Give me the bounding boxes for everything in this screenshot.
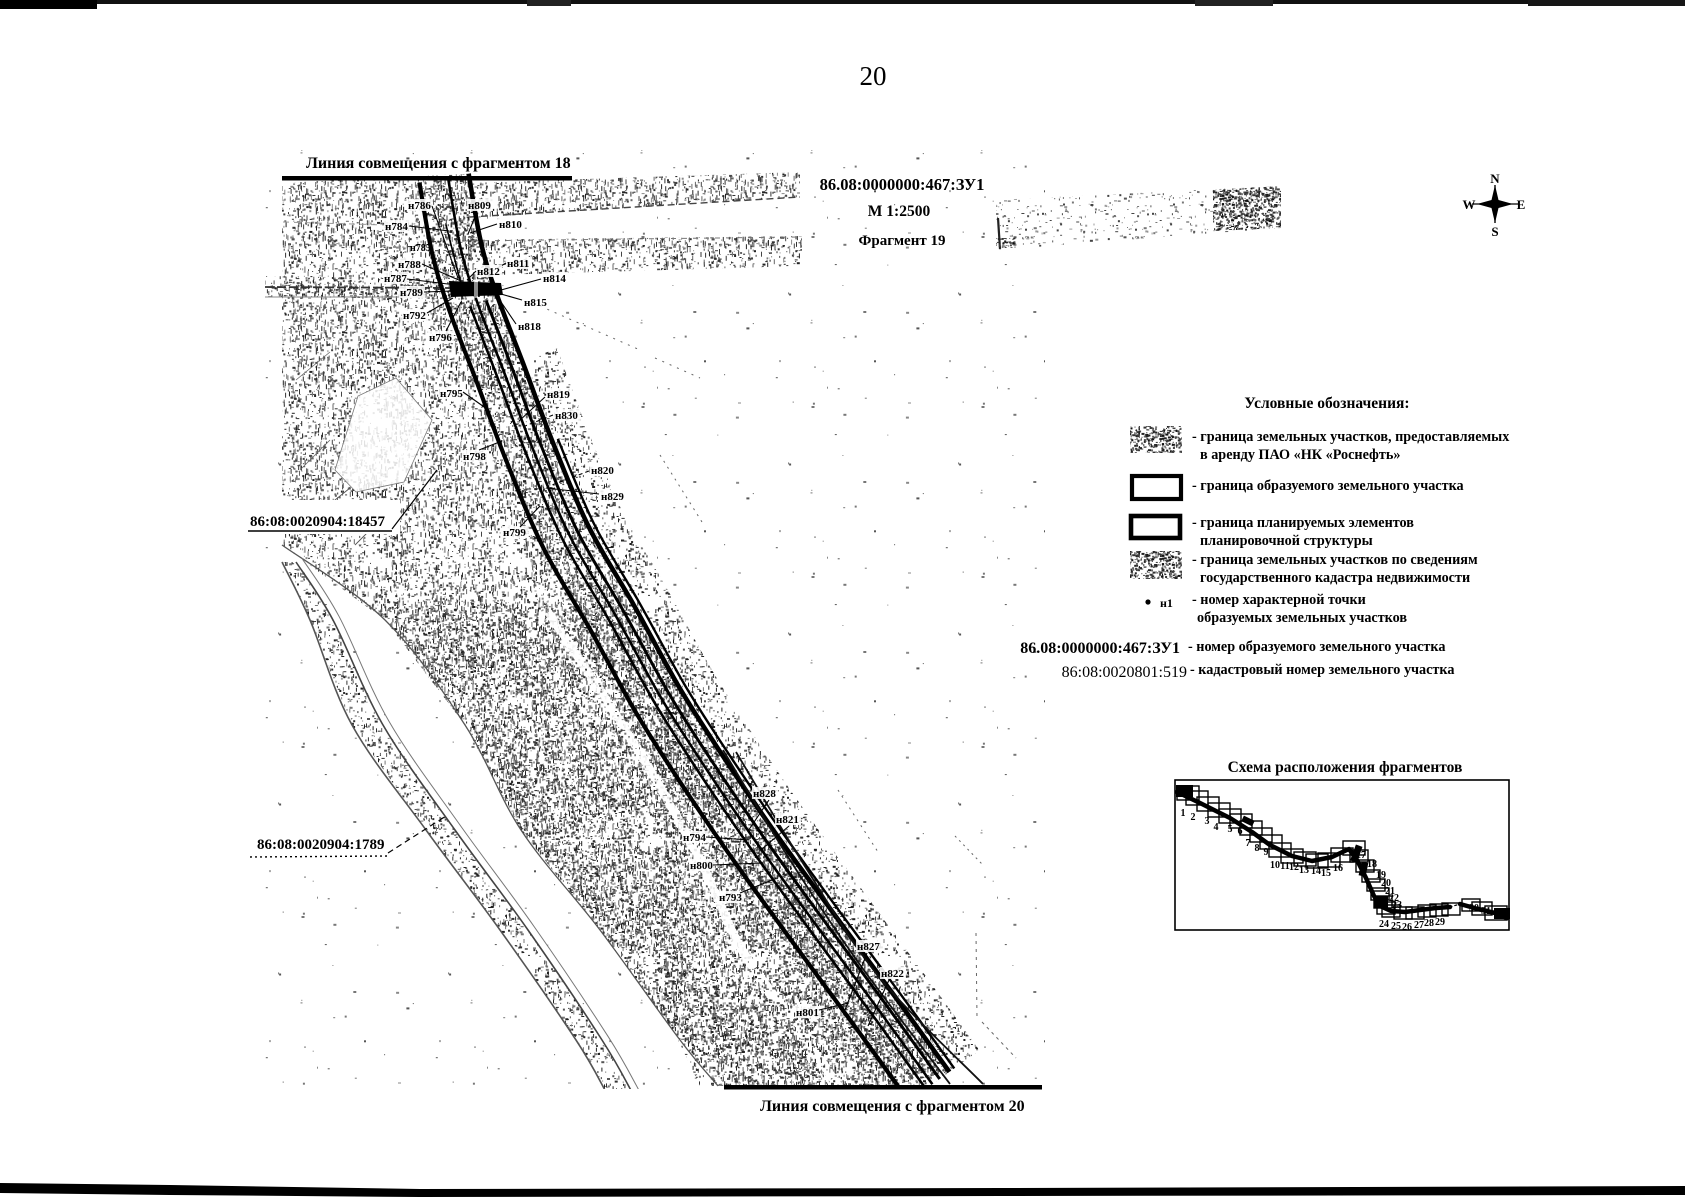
svg-text:- граница земельных участков,: - граница земельных участков, предоставл…: [1192, 429, 1510, 445]
svg-text:9: 9: [1264, 847, 1269, 858]
svg-text:17: 17: [1356, 850, 1366, 861]
svg-text:н810: н810: [499, 219, 522, 231]
svg-text:86:08:0020904:18457: 86:08:0020904:18457: [250, 514, 385, 530]
svg-text:- кадастровый номер земельного: - кадастровый номер земельного участка: [1190, 662, 1454, 678]
svg-text:86.08:0000000:467:ЗУ1: 86.08:0000000:467:ЗУ1: [1020, 640, 1180, 657]
svg-text:N: N: [1490, 171, 1500, 186]
svg-text:- граница образуемого земельно: - граница образуемого земельного участка: [1192, 478, 1464, 494]
svg-text:н793: н793: [719, 892, 742, 904]
svg-text:- номер образуемого земельного: - номер образуемого земельного участка: [1188, 639, 1445, 655]
svg-text:образуемых земельных участков: образуемых земельных участков: [1197, 610, 1407, 626]
svg-text:н788: н788: [398, 259, 421, 271]
svg-text:н786: н786: [408, 200, 431, 212]
svg-text:н828: н828: [753, 788, 776, 800]
svg-text:н795: н795: [440, 388, 463, 400]
svg-text:н800: н800: [690, 860, 713, 872]
svg-text:- граница планируемых элементо: - граница планируемых элементов: [1192, 515, 1414, 531]
svg-text:н819: н819: [547, 389, 570, 401]
svg-text:W: W: [1463, 197, 1476, 212]
svg-text:26: 26: [1402, 922, 1412, 933]
svg-text:12: 12: [1289, 862, 1299, 873]
svg-text:13: 13: [1299, 865, 1309, 876]
svg-text:86:08:0020801:519: 86:08:0020801:519: [1062, 664, 1187, 681]
svg-text:н796: н796: [429, 332, 452, 344]
svg-text:27: 27: [1414, 920, 1424, 931]
svg-text:Схема расположения фрагментов: Схема расположения фрагментов: [1228, 759, 1463, 776]
svg-text:н811: н811: [507, 258, 529, 270]
svg-text:20: 20: [860, 61, 887, 91]
svg-text:28: 28: [1424, 918, 1434, 929]
svg-text:- номер характерной точки: - номер характерной точки: [1192, 592, 1366, 608]
svg-text:н820: н820: [591, 465, 614, 477]
svg-text:1: 1: [1181, 808, 1186, 819]
svg-text:29: 29: [1435, 917, 1445, 928]
svg-text:18: 18: [1367, 859, 1377, 870]
svg-text:Фрагмент 19: Фрагмент 19: [859, 233, 946, 249]
svg-text:н801: н801: [796, 1007, 819, 1019]
svg-text:31: 31: [1481, 906, 1491, 917]
svg-text:24: 24: [1379, 919, 1389, 930]
svg-text:н798: н798: [463, 451, 486, 463]
svg-text:5: 5: [1228, 824, 1233, 835]
svg-text:н792: н792: [403, 310, 426, 322]
svg-text:86:08:0020904:1789: 86:08:0020904:1789: [257, 837, 385, 853]
svg-text:н827: н827: [857, 941, 880, 953]
svg-text:н799: н799: [503, 527, 526, 539]
svg-text:н830: н830: [555, 410, 578, 422]
svg-text:14: 14: [1311, 866, 1321, 877]
svg-text:н815: н815: [524, 297, 547, 309]
svg-text:н787: н787: [384, 273, 407, 285]
svg-text:н821: н821: [776, 814, 799, 826]
svg-text:н809: н809: [468, 200, 491, 212]
svg-text:4: 4: [1214, 822, 1219, 833]
svg-text:3: 3: [1205, 816, 1210, 827]
svg-text:Линия совмещения с фрагментом: Линия совмещения с фрагментом 20: [760, 1098, 1025, 1115]
svg-text:Условные обозначения:: Условные обозначения:: [1244, 395, 1409, 412]
svg-text:н1: н1: [1160, 596, 1173, 610]
svg-text:н818: н818: [518, 321, 541, 333]
svg-text:н822: н822: [881, 968, 904, 980]
svg-text:н784: н784: [385, 221, 408, 233]
svg-text:- граница земельных участков п: - граница земельных участков по сведения…: [1192, 552, 1478, 568]
svg-text:30: 30: [1469, 903, 1479, 914]
svg-text:16: 16: [1333, 863, 1343, 874]
svg-text:в аренду ПАО «НК «Роснефть»: в аренду ПАО «НК «Роснефть»: [1200, 447, 1400, 463]
svg-text:н812: н812: [477, 266, 500, 278]
svg-text:23: 23: [1392, 900, 1402, 911]
svg-text:2: 2: [1191, 812, 1196, 823]
svg-text:25: 25: [1391, 921, 1401, 932]
svg-text:н789: н789: [400, 287, 423, 299]
svg-text:н814: н814: [543, 273, 566, 285]
svg-text:н829: н829: [601, 491, 624, 503]
svg-text:государственного кадастра недв: государственного кадастра недвижимости: [1200, 570, 1470, 586]
svg-text:S: S: [1491, 224, 1498, 239]
svg-text:планировочной структуры: планировочной структуры: [1200, 533, 1373, 549]
svg-text:15: 15: [1321, 868, 1331, 879]
svg-text:8: 8: [1255, 843, 1260, 854]
svg-text:7: 7: [1246, 838, 1251, 849]
svg-text:E: E: [1517, 197, 1526, 212]
svg-text:Линия совмещения с фрагментом: Линия совмещения с фрагментом 18: [306, 155, 571, 172]
svg-text:32: 32: [1494, 910, 1504, 921]
svg-text:М 1:2500: М 1:2500: [868, 203, 931, 220]
svg-text:86.08:0000000:467:ЗУ1: 86.08:0000000:467:ЗУ1: [820, 175, 985, 194]
svg-text:10: 10: [1270, 860, 1280, 871]
svg-text:н785: н785: [410, 243, 431, 254]
svg-text:6: 6: [1238, 826, 1243, 837]
svg-text:н794: н794: [683, 832, 706, 844]
